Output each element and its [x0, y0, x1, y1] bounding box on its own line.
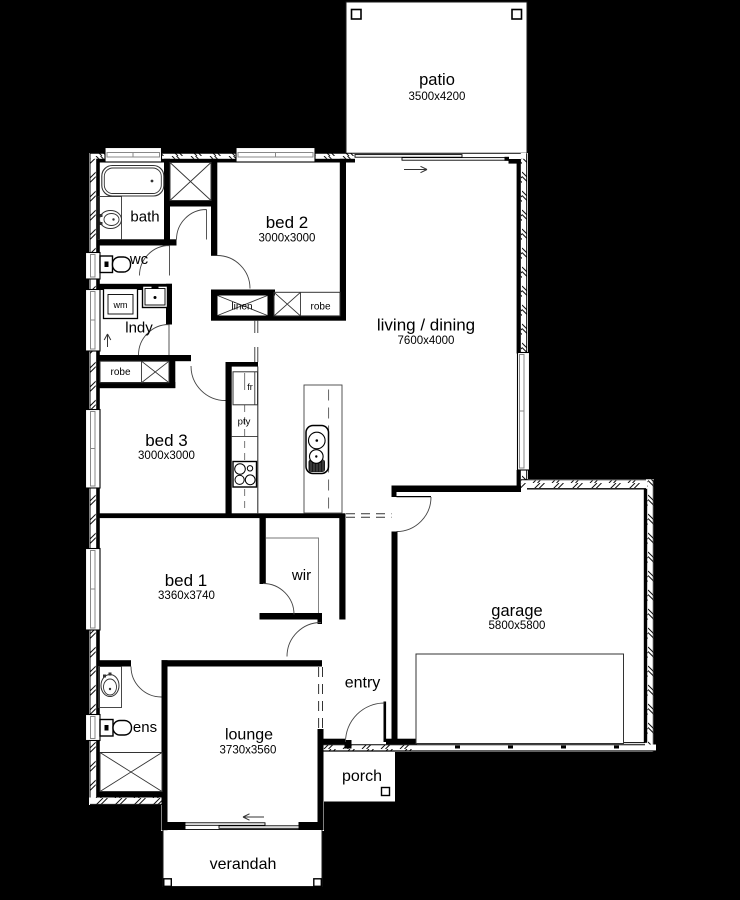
svg-text:3500x4200: 3500x4200: [409, 91, 466, 103]
svg-text:3730x3560: 3730x3560: [220, 745, 277, 757]
svg-text:ens: ens: [133, 719, 157, 736]
svg-text:entry: entry: [345, 675, 381, 692]
svg-text:7600x4000: 7600x4000: [398, 335, 455, 347]
svg-text:living / dining: living / dining: [377, 316, 475, 335]
svg-text:porch: porch: [342, 768, 382, 785]
svg-text:bath: bath: [130, 209, 159, 226]
svg-text:fr: fr: [247, 382, 253, 392]
svg-text:lndy: lndy: [125, 320, 153, 337]
svg-text:wm: wm: [113, 300, 128, 310]
svg-text:wir: wir: [291, 567, 311, 584]
svg-text:patio: patio: [419, 71, 455, 89]
svg-text:wc: wc: [129, 251, 149, 268]
svg-text:pty: pty: [238, 417, 251, 428]
svg-text:3000x3000: 3000x3000: [138, 450, 195, 462]
svg-text:garage: garage: [491, 602, 542, 620]
svg-text:verandah: verandah: [210, 856, 277, 873]
svg-text:bed 3: bed 3: [145, 431, 188, 450]
svg-text:lounge: lounge: [225, 727, 273, 744]
svg-text:5800x5800: 5800x5800: [489, 620, 546, 632]
svg-text:linen: linen: [231, 302, 252, 313]
svg-text:bed 2: bed 2: [266, 213, 309, 232]
svg-text:3360x3740: 3360x3740: [158, 590, 215, 602]
svg-text:3000x3000: 3000x3000: [259, 233, 316, 245]
svg-text:robe: robe: [310, 302, 330, 313]
svg-text:bed 1: bed 1: [165, 571, 208, 590]
svg-text:robe: robe: [110, 367, 130, 378]
